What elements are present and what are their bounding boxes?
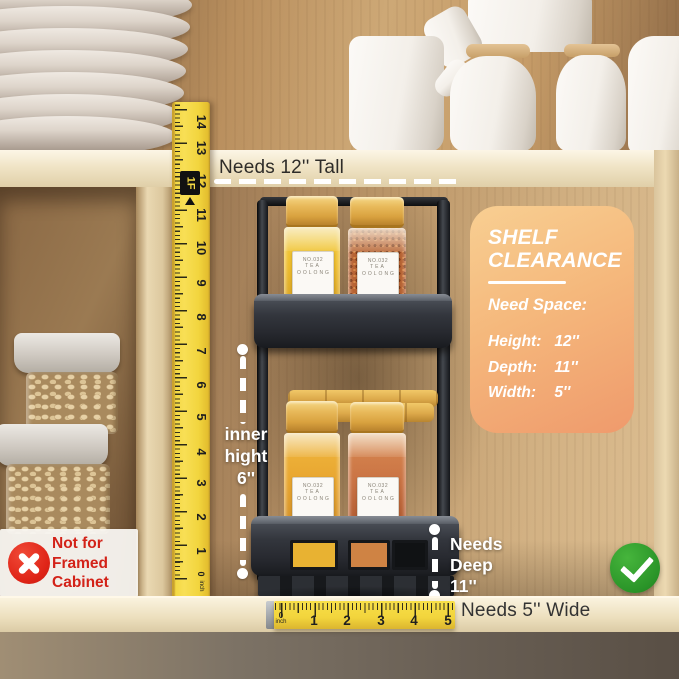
partial-vessel [628,36,679,154]
card-subtitle: Need Space: [488,296,616,315]
ruler-number: 14 [193,113,209,131]
ruler-number: 2 [339,613,355,628]
spice-jar-turmeric: NO.032 TEA OOLONG [284,227,340,302]
not-for-line3: Cabinet [52,573,109,593]
ruler-number: 8 [193,308,209,326]
ruler-number: 4 [406,613,422,628]
jar-glass [348,433,406,457]
needs-deep-text: Needs Deep 11'' [450,534,503,597]
product-infographic-scene: NO.032 TEA OOLONG NO.032 TEA OOLONG [0,0,679,679]
needs-deep-line1: Needs [450,534,503,555]
x-icon [8,542,50,584]
needs-wide-label: Needs 5'' Wide [461,600,590,622]
not-for-line2: Framed [52,554,109,574]
spec-label: Width: [488,380,550,406]
ruler-number: 9 [193,274,209,292]
jar-glass [284,433,340,457]
spec-label: Height: [488,329,550,355]
ruler-number: 7 [193,342,209,360]
jar-label-name: TEA OOLONG [358,489,398,503]
canister [349,36,444,152]
spec-row-width: Width: 5'' [488,380,616,406]
height-dashed-line [214,179,458,184]
spice-jar-cap [286,196,338,228]
jar-label-name: TEA OOLONG [358,264,398,278]
ruler-number: 5 [440,613,456,628]
inner-height-text: inner hight 6'' [208,423,284,489]
spec-row-height: Height: 12'' [488,329,616,355]
jar-glass [284,227,340,251]
dash-endpoint-dot [237,568,248,579]
spice-jar-cap [350,197,404,228]
spice-jar-cap [286,401,338,434]
basket-window-orange [348,540,390,570]
dash-endpoint-dot [429,524,440,535]
spec-value: 5'' [554,384,570,401]
inner-height-dashes-top [240,356,246,424]
spice-jar-paprika: NO.032 TEA OOLONG [348,433,406,525]
card-title-line1: SHELF [488,226,616,249]
spec-row-depth: Depth: 11'' [488,355,616,381]
basket-window-yellow [290,540,338,570]
spec-label: Depth: [488,355,550,381]
needs-deep-dashes [432,537,438,589]
ruler-unit: inch [274,619,288,625]
ruler-number: 2 [193,508,209,526]
spice-jar-label: NO.032 TEA OOLONG [357,252,399,298]
inner-height-line2: hight [208,445,284,467]
ruler-end-clip [266,601,274,629]
not-for-line1: Not for [52,534,109,554]
jar-lid [14,333,120,373]
jar-glass [348,228,406,252]
card-title-line2: CLEARANCE [488,249,616,272]
cabinet-divider [136,187,174,598]
cashew-jar [6,464,110,534]
jar-label-name: TEA OOLONG [293,489,333,503]
ruler-number: 4 [193,443,209,461]
ruler-unit: inch [193,577,209,595]
ruler-number: 10 [193,239,209,257]
ruler-number: 1 [306,613,322,628]
ruler-ticks-inch [274,603,455,617]
dash-endpoint-dot [237,344,248,355]
ruler-number: 3 [373,613,389,628]
needs-deep-line3: 11'' [450,576,503,597]
shelf-clearance-card: SHELF CLEARANCE Need Space: Height: 12''… [470,206,634,433]
jar-label-name: TEA OOLONG [293,263,333,277]
spec-value: 12'' [554,333,579,350]
inner-height-dashes-bottom [240,494,246,566]
inner-height-line1: inner [208,423,284,445]
foot-marker: 1F [180,171,200,195]
pot-body [556,55,626,152]
needs-deep-line2: Deep [450,555,503,576]
check-mark [620,548,654,583]
basket-window-dark [392,540,428,570]
card-divider [488,281,566,284]
not-for-framed-text: Not for Framed Cabinet [52,534,109,593]
jar-lid [0,424,108,466]
ruler-number: 11 [193,206,209,224]
ruler-number: 6 [193,376,209,394]
inner-height-line3: 6'' [208,467,284,489]
spec-value: 11'' [554,359,577,376]
spice-jar-label: NO.032 TEA OOLONG [357,477,399,519]
spice-jar-cap [350,402,404,434]
not-for-framed-badge: Not for Framed Cabinet [0,529,138,597]
horizontal-ruler-tape: 0 inch 1 2 3 4 5 [274,601,455,629]
spice-jar-peppercorn: NO.032 TEA OOLONG [348,228,406,302]
ruler-number: 13 [193,139,209,157]
ruler-number: 3 [193,474,209,492]
ruler-number: 1 [193,542,209,560]
bottom-board-face [0,632,679,679]
spice-jar-curry: NO.032 TEA OOLONG [284,433,340,525]
spice-jar-label: NO.032 TEA OOLONG [292,251,334,297]
tier1-basket [254,301,452,348]
spice-jar-label: NO.032 TEA OOLONG [292,477,334,519]
check-icon [610,543,660,593]
foot-marker-arrow [185,197,195,205]
foot-marker-text: 1F [184,177,196,190]
teapot-body [450,56,536,152]
ruler-number: 5 [193,408,209,426]
needs-tall-label: Needs 12'' Tall [219,157,344,179]
